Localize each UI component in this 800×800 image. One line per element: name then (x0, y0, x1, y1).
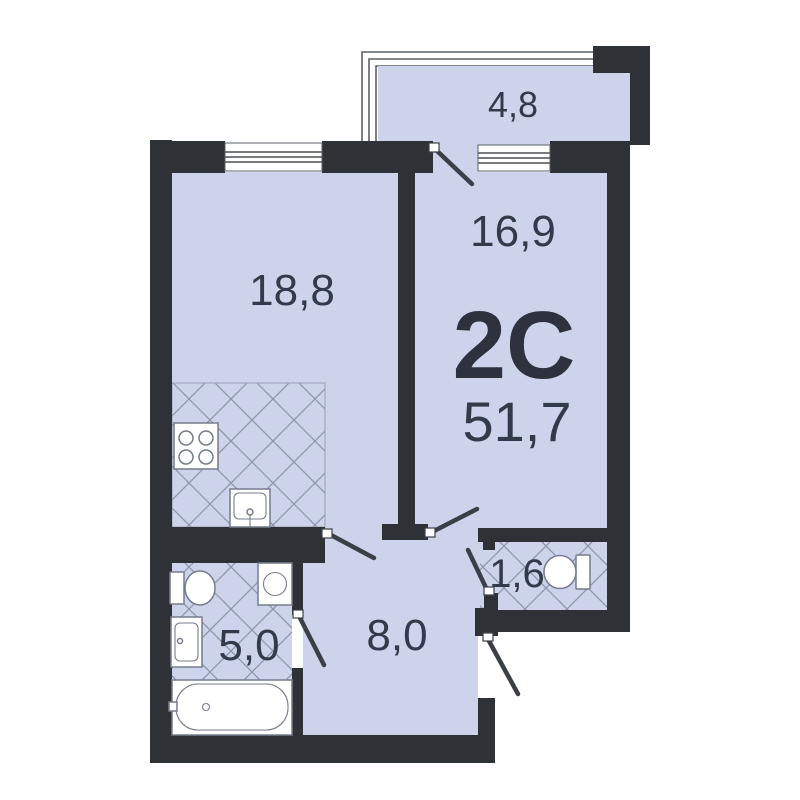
wall-top-a (150, 141, 225, 173)
stove (174, 423, 218, 469)
wall-bottom (150, 735, 495, 763)
entry-corner-block (475, 608, 498, 636)
room-divider-wall (398, 173, 415, 526)
bathroom-right-wall-bottom (292, 668, 303, 735)
bathroom-area-label: 5,0 (218, 621, 279, 670)
wc-top-wall (478, 528, 630, 542)
kitchen-sink (230, 489, 270, 527)
wall-top-b (322, 141, 433, 173)
bathroom-sink (171, 617, 202, 667)
bedroom-window (478, 145, 550, 171)
balcony-right-wall (630, 46, 650, 145)
entry-lower-wall (478, 698, 495, 738)
total-area-label: 51,7 (463, 390, 572, 453)
wc-left-stub (483, 542, 495, 550)
living-area-label: 18,8 (249, 266, 335, 315)
kitchen-hall-wall (172, 527, 325, 563)
room-divider-foot (382, 524, 428, 540)
bathtub (169, 680, 292, 735)
balcony-area-label: 4,8 (488, 84, 538, 125)
apartment-type-label: 2С (453, 292, 576, 399)
washing-machine (258, 563, 292, 605)
wc-toilet (544, 555, 590, 589)
living-room-window (225, 143, 322, 171)
bathroom-right-wall-top (292, 563, 303, 615)
wc-bottom-wall (496, 610, 630, 632)
bathroom-toilet (170, 571, 215, 605)
bedroom-area-label: 16,9 (470, 207, 556, 256)
wall-right (607, 141, 630, 628)
floorplan-canvas: 4,8 18,8 16,9 2С 51,7 5,0 8,0 1,6 (0, 0, 800, 800)
wall-left (150, 140, 172, 763)
hallway-area-label: 8,0 (366, 611, 427, 660)
floorplan-svg: 4,8 18,8 16,9 2С 51,7 5,0 8,0 1,6 (0, 0, 800, 800)
wc-area-label: 1,6 (489, 552, 545, 596)
